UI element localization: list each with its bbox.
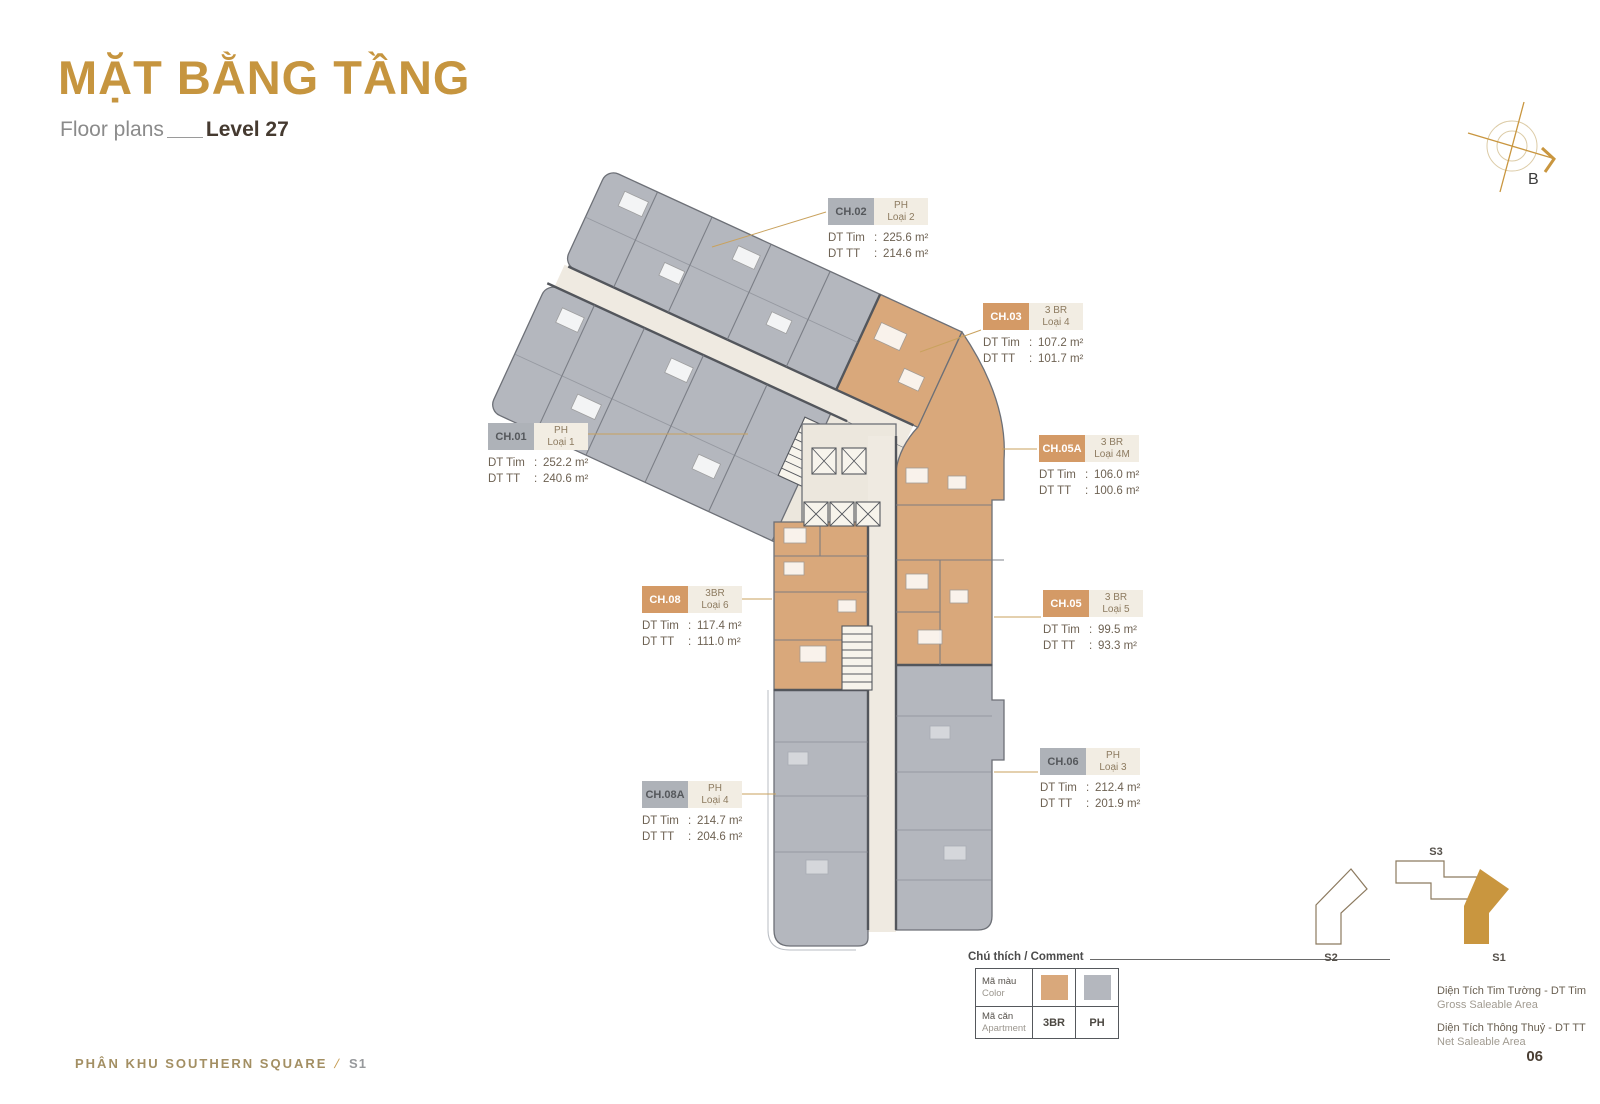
unit-variant: Loại 4 — [701, 795, 728, 807]
gray-swatch — [1084, 975, 1111, 1000]
gross-area-vi: Diện Tích Tim Tường - DT Tim — [1437, 984, 1586, 998]
unit-areas: DT Tim:225.6 m² DT TT:214.6 m² — [828, 230, 928, 262]
unit-ch06-area — [896, 665, 1004, 930]
floor-plan-page: MẶT BẰNG TẦNG Floor plans Level 27 B — [0, 0, 1600, 1104]
unit-variant: Loại 6 — [701, 600, 728, 612]
unit-type: 3 BR Loại 5 — [1089, 590, 1143, 617]
footer-separator: / — [333, 1056, 343, 1071]
unit-kind: 3 BR — [1101, 437, 1123, 449]
unit-kind: PH — [894, 200, 908, 212]
unit-type: PH Loại 4 — [688, 781, 742, 808]
unit-kind: PH — [1106, 750, 1120, 762]
unit-areas: DT Tim:117.4 m² DT TT:111.0 m² — [642, 618, 742, 650]
unit-variant: Loại 4M — [1094, 449, 1130, 461]
unit-kind: 3BR — [705, 588, 724, 600]
legend-swatch-tan-cell — [1033, 969, 1076, 1007]
unit-areas: DT Tim:214.7 m² DT TT:204.6 m² — [642, 813, 742, 845]
unit-type: PH Loại 3 — [1086, 748, 1140, 775]
unit-areas: DT Tim:107.2 m² DT TT:101.7 m² — [983, 335, 1083, 367]
legend-type-ph: PH — [1076, 1007, 1119, 1039]
unit-code: CH.03 — [983, 303, 1029, 330]
unit-ch08a-area — [774, 690, 868, 946]
footer-section-title: PHÂN KHU SOUTHERN SQUARE / S1 — [75, 1056, 367, 1071]
unit-label-ch01: CH.01 PH Loại 1 DT Tim:252.2 m² DT TT:24… — [488, 423, 588, 487]
unit-variant: Loại 3 — [1099, 762, 1126, 774]
unit-code: CH.06 — [1040, 748, 1086, 775]
unit-code: CH.05A — [1039, 435, 1085, 462]
tan-swatch — [1041, 975, 1068, 1000]
unit-label-ch05: CH.05 3 BR Loại 5 DT Tim:99.5 m² DT TT:9… — [1043, 590, 1143, 654]
unit-variant: Loại 4 — [1042, 317, 1069, 329]
legend-table: Mã màu Color Mã căn Apartment 3BR PH — [975, 968, 1119, 1039]
net-area-vi: Diện Tích Thông Thuỷ - DT TT — [1437, 1021, 1586, 1035]
minimap-label-s2: S2 — [1324, 952, 1337, 964]
legend-row-color-label: Mã màu Color — [976, 969, 1033, 1007]
unit-type: PH Loại 1 — [534, 423, 588, 450]
minimap-label-s3: S3 — [1429, 846, 1442, 858]
unit-areas: DT Tim:99.5 m² DT TT:93.3 m² — [1043, 622, 1143, 654]
unit-kind: PH — [708, 783, 722, 795]
legend-swatch-gray-cell — [1076, 969, 1119, 1007]
unit-label-ch06: CH.06 PH Loại 3 DT Tim:212.4 m² DT TT:20… — [1040, 748, 1140, 812]
unit-type: 3 BR Loại 4M — [1085, 435, 1139, 462]
minimap-building-s2 — [1316, 869, 1367, 944]
legend-row-apartment-label: Mã căn Apartment — [976, 1007, 1033, 1039]
unit-label-ch02: CH.02 PH Loại 2 DT Tim:225.6 m² DT TT:21… — [828, 198, 928, 262]
minimap-label-s1: S1 — [1492, 952, 1505, 964]
unit-label-ch08: CH.08 3BR Loại 6 DT Tim:117.4 m² DT TT:1… — [642, 586, 742, 650]
stair-core-lower — [842, 626, 872, 690]
compass-north-label: B — [1528, 171, 1539, 188]
unit-label-ch03: CH.03 3 BR Loại 4 DT Tim:107.2 m² DT TT:… — [983, 303, 1083, 367]
unit-areas: DT Tim:252.2 m² DT TT:240.6 m² — [488, 455, 588, 487]
legend-type-3br: 3BR — [1033, 1007, 1076, 1039]
unit-kind: 3 BR — [1105, 592, 1127, 604]
unit-code: CH.05 — [1043, 590, 1089, 617]
net-area-en: Net Saleable Area — [1437, 1035, 1586, 1049]
unit-type: 3 BR Loại 4 — [1029, 303, 1083, 330]
unit-label-ch08a: CH.08A PH Loại 4 DT Tim:214.7 m² DT TT:2… — [642, 781, 742, 845]
footer-project: PHÂN KHU SOUTHERN SQUARE — [75, 1056, 327, 1071]
compass-icon: B — [1442, 96, 1567, 201]
unit-areas: DT Tim:106.0 m² DT TT:100.6 m² — [1039, 467, 1139, 499]
unit-label-ch05a: CH.05A 3 BR Loại 4M DT Tim:106.0 m² DT T… — [1039, 435, 1139, 499]
unit-type: 3BR Loại 6 — [688, 586, 742, 613]
unit-kind: 3 BR — [1045, 305, 1067, 317]
unit-variant: Loại 5 — [1102, 604, 1129, 616]
unit-code: CH.08 — [642, 586, 688, 613]
unit-areas: DT Tim:212.4 m² DT TT:201.9 m² — [1040, 780, 1140, 812]
unit-type: PH Loại 2 — [874, 198, 928, 225]
page-number: 06 — [1526, 1048, 1543, 1065]
area-definitions: Diện Tích Tim Tường - DT Tim Gross Salea… — [1437, 984, 1586, 1058]
unit-variant: Loại 1 — [547, 437, 574, 449]
unit-code: CH.02 — [828, 198, 874, 225]
site-minimap: S3 S2 S1 — [1290, 830, 1530, 970]
minimap-building-s3 — [1396, 861, 1477, 899]
unit-variant: Loại 2 — [887, 212, 914, 224]
footer-section: S1 — [349, 1056, 367, 1071]
unit-kind: PH — [554, 425, 568, 437]
legend-title-text: Chú thích / Comment — [968, 951, 1084, 963]
gross-area-en: Gross Saleable Area — [1437, 998, 1586, 1012]
unit-code: CH.08A — [642, 781, 688, 808]
unit-code: CH.01 — [488, 423, 534, 450]
